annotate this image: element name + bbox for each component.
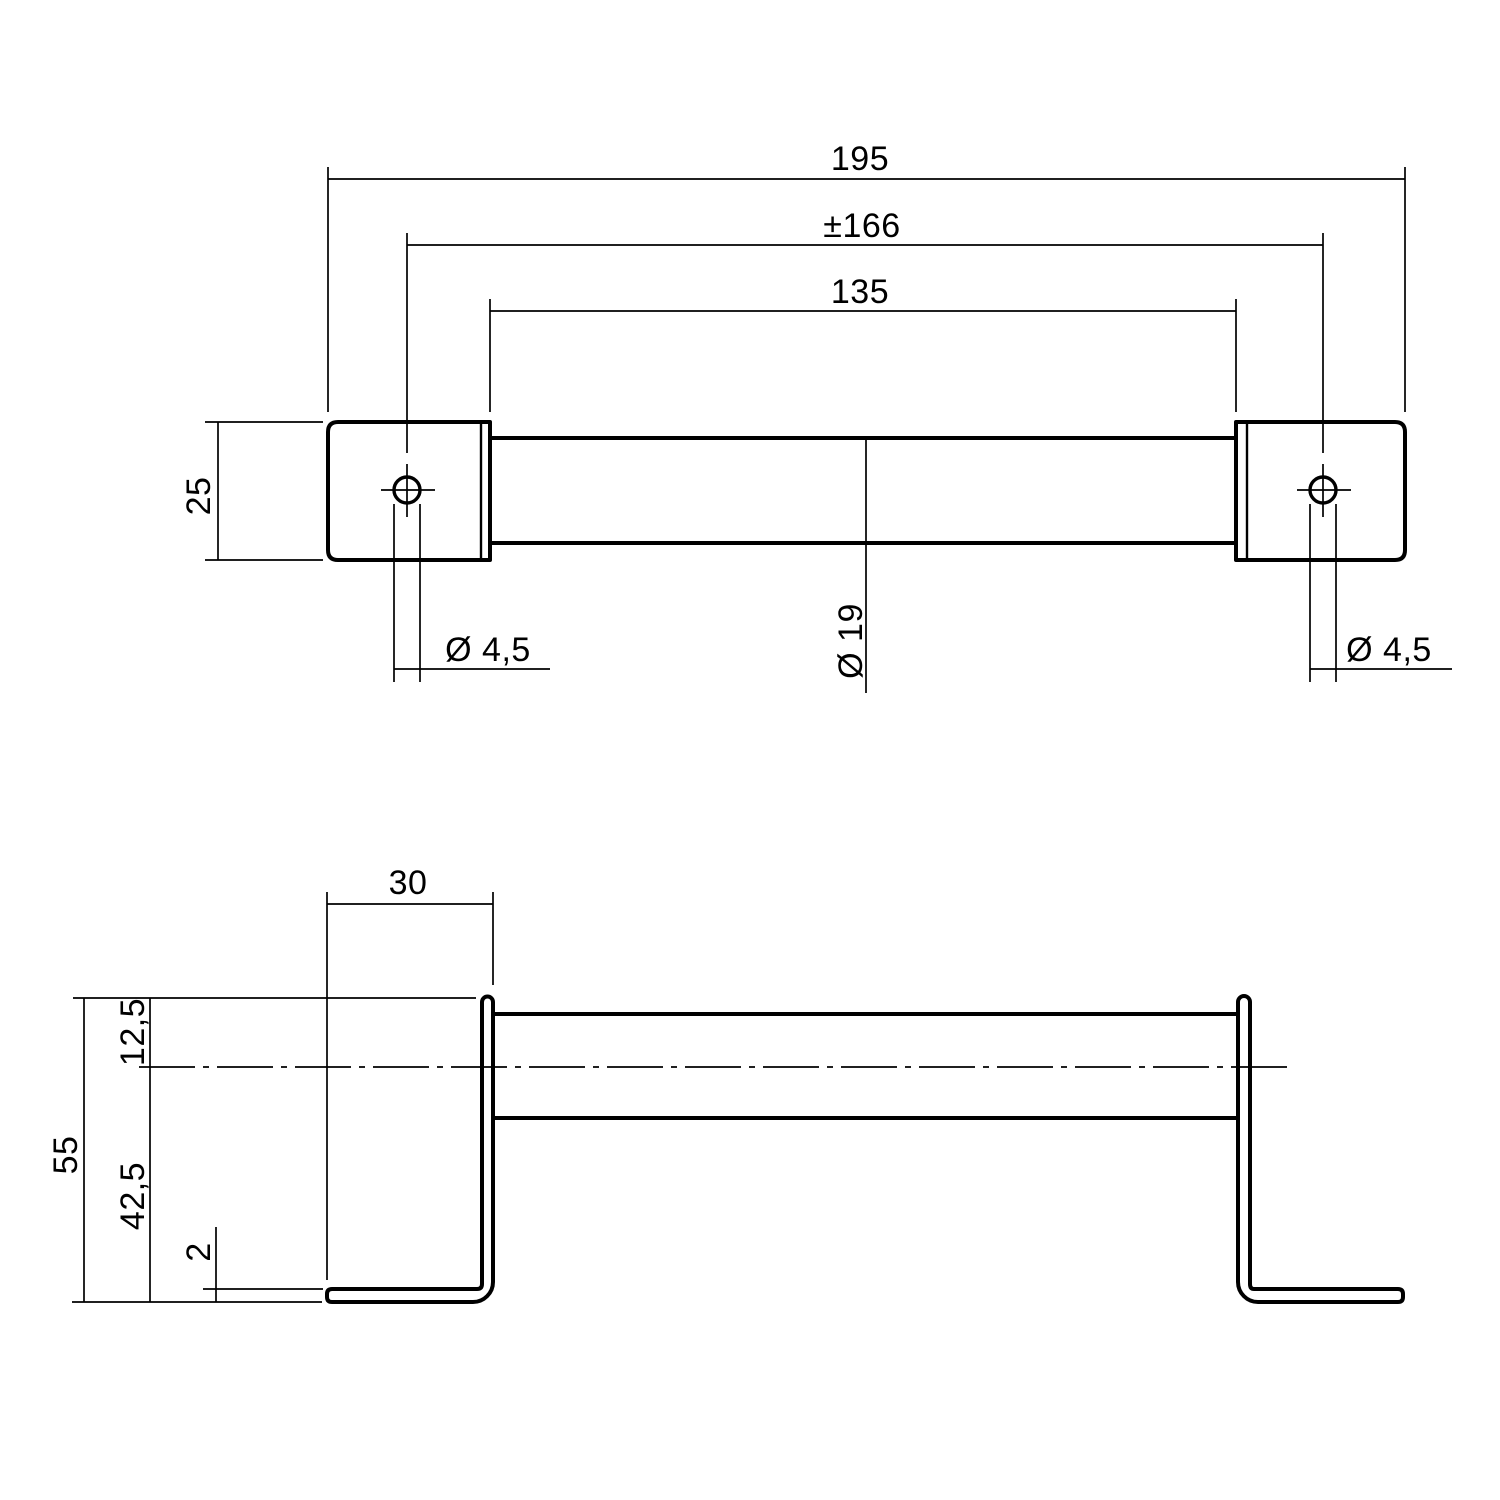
dim-bar-diameter: Ø 19 [832,438,870,693]
right-mount-block [1236,422,1405,560]
dim-block-size: 25 [180,422,323,560]
side-view-outline [327,996,1403,1302]
handle-technical-drawing: 195 ±166 135 25 Ø 4,5 [0,0,1500,1500]
technical-drawing-page: 195 ±166 135 25 Ø 4,5 [0,0,1500,1500]
dim-grip-length: 135 [490,273,1236,412]
right-bracket-profile [1238,996,1403,1302]
dim-material-thickness: 2 [180,1227,323,1302]
front-view: 195 ±166 135 25 Ø 4,5 [180,140,1452,693]
dim-label-axis-to-bottom: 42,5 [114,1162,152,1230]
dim-bracket-depth: 30 [327,864,493,1280]
dim-axis-offsets: 12,5 42,5 [114,998,152,1302]
dim-label-hole-diameter-right: Ø 4,5 [1346,631,1432,669]
dim-hole-diameter-right: Ø 4,5 [1310,504,1452,682]
left-bracket-profile [327,997,493,1303]
left-mount-block [328,422,490,560]
dim-label-overall-height: 55 [47,1136,85,1175]
dim-label-hole-diameter-left: Ø 4,5 [445,631,531,669]
dim-label-grip-length: 135 [831,273,889,311]
dim-hole-diameter-left: Ø 4,5 [394,504,550,682]
dim-hole-spacing: ±166 [407,207,1323,453]
dim-label-top-to-axis: 12,5 [114,998,152,1066]
dim-label-bracket-depth: 30 [389,864,428,902]
dim-label-material-thickness: 2 [180,1242,218,1261]
dim-label-hole-spacing: ±166 [823,207,900,245]
dim-label-bar-diameter: Ø 19 [832,603,870,679]
dim-label-overall-width: 195 [831,140,889,178]
dim-overall-height: 55 [47,998,85,1302]
side-view: 30 55 12,5 42,5 2 [47,864,1403,1302]
dim-label-block-size: 25 [180,477,218,516]
